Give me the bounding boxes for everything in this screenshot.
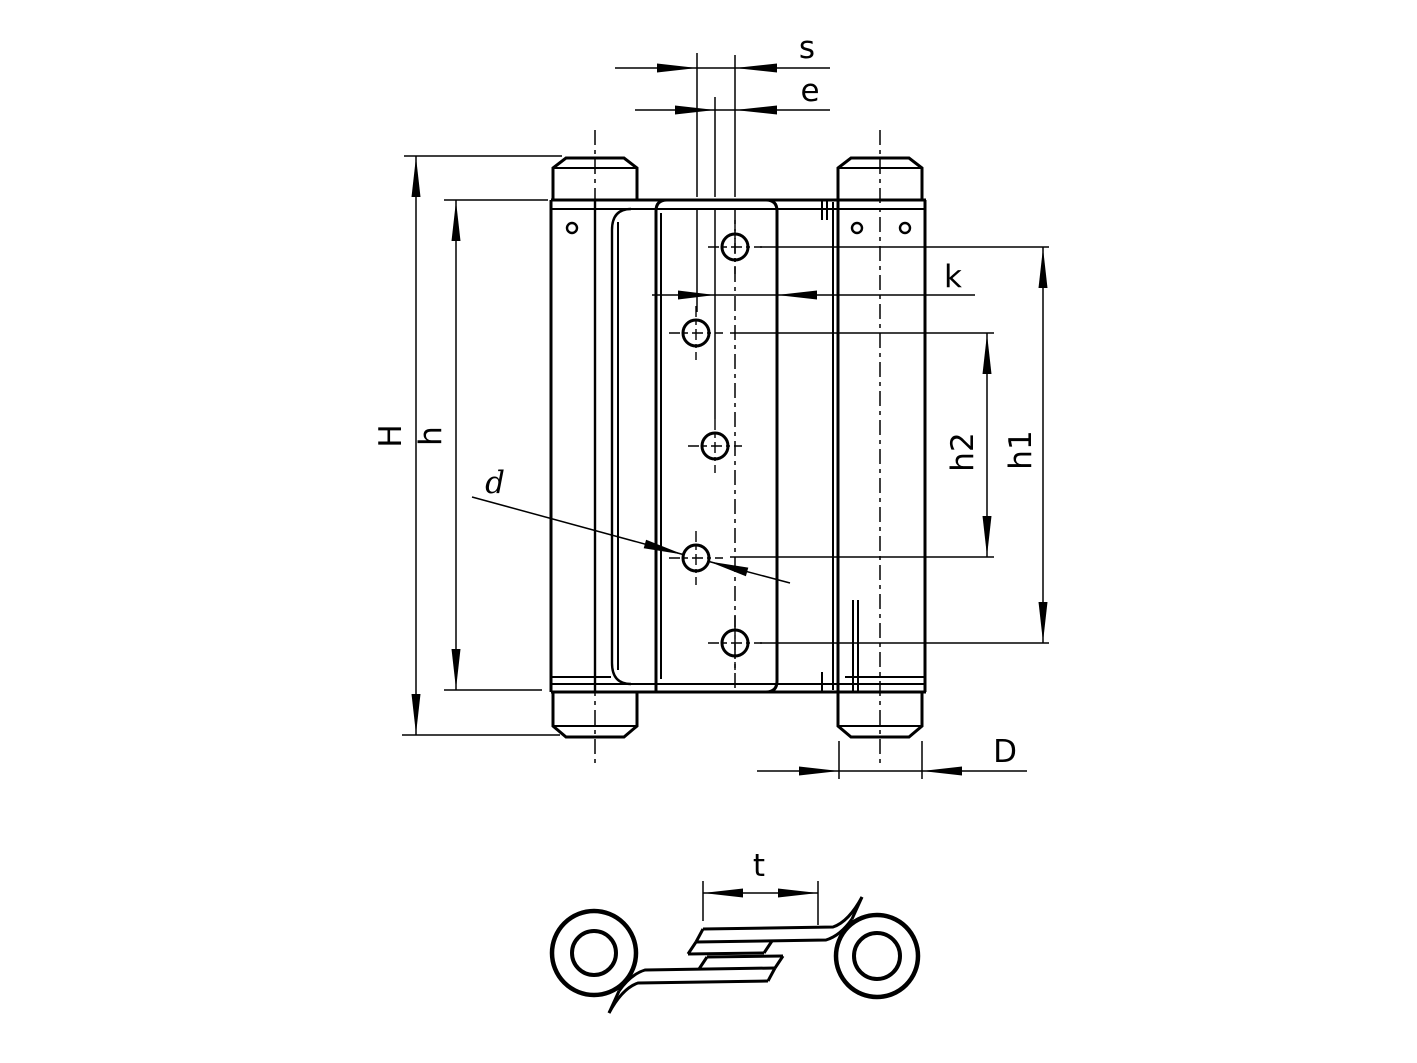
dim-label-k: k (944, 259, 962, 295)
dim-label-t: t (753, 848, 765, 884)
dim-label-h1: h1 (1003, 430, 1039, 469)
dim-label-e: e (800, 73, 819, 109)
drawing-background (0, 0, 1417, 1063)
dim-label-h2: h2 (945, 432, 981, 471)
dim-label-s: s (799, 30, 815, 66)
dim-label-h: h (413, 426, 449, 446)
drawing-canvas: s e k H (0, 0, 1417, 1063)
dim-label-d: d (485, 465, 505, 501)
dim-label-H: H (373, 424, 409, 447)
technical-drawing: s e k H (0, 0, 1417, 1063)
dim-label-D: D (993, 734, 1017, 770)
